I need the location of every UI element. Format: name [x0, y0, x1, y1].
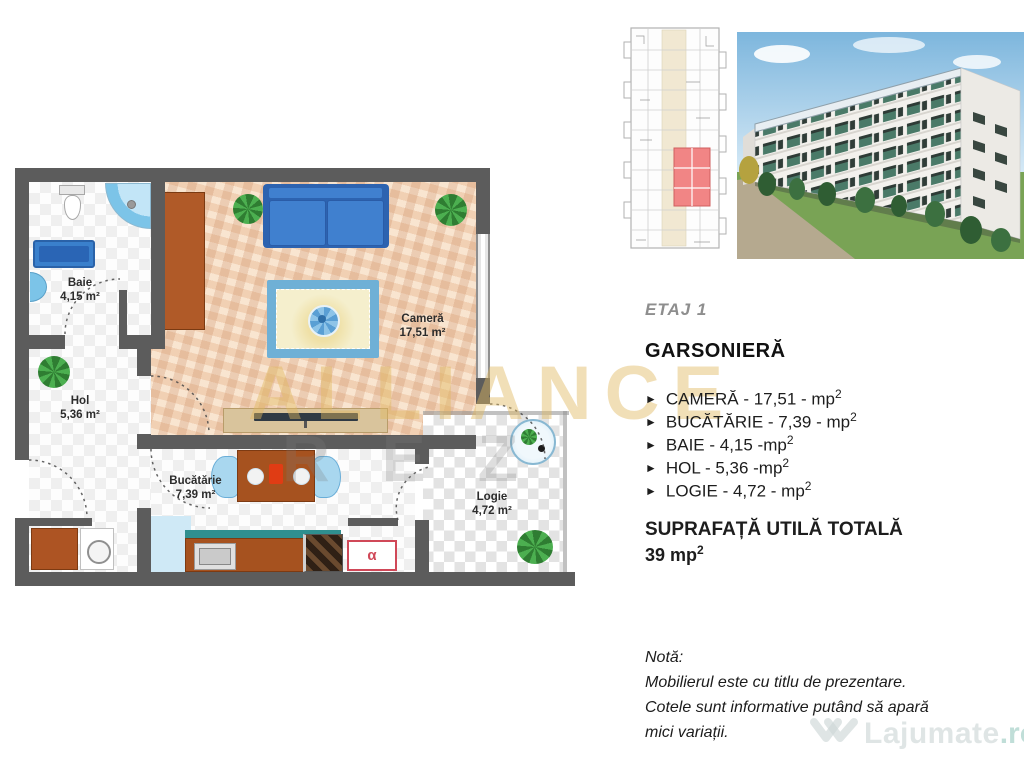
bullet-icon: ► — [645, 392, 657, 406]
boiler-symbol: α — [367, 547, 376, 564]
label-loggia: Logie4,72 m² — [447, 490, 537, 518]
area-list-item: ►CAMERĂ - 17,51 - mp2 — [645, 387, 985, 410]
wall-hall-right-2 — [137, 434, 151, 449]
loggia-bush-icon — [517, 530, 553, 564]
bullet-icon: ► — [645, 415, 657, 429]
kitchen-sink — [194, 543, 236, 570]
area-list-item: ►HOL - 5,36 -mp2 — [645, 456, 985, 479]
label-hall: Hol5,36 m² — [45, 394, 115, 422]
label-living-room: Cameră17,51 m² — [375, 312, 470, 340]
key-plan — [616, 22, 734, 258]
wall-hall-right-1 — [137, 349, 151, 376]
note-line: Mobilierul este cu titlu de prezentare. — [645, 670, 1005, 695]
area-list-item: ►BUCĂTĂRIE - 7,39 - mp2 — [645, 410, 985, 433]
wall-loggia-door-jamb — [348, 518, 398, 526]
bullet-icon: ► — [645, 438, 657, 452]
label-bathroom: Baie4,15 m² — [45, 276, 115, 304]
note-line: mici variații. — [645, 720, 1005, 745]
bullet-icon: ► — [645, 484, 657, 498]
stove — [303, 534, 343, 572]
wall-bottom — [15, 572, 575, 586]
floor-label: ETAJ 1 — [645, 300, 985, 320]
bathtub — [33, 240, 95, 268]
total-area-value: 39 mp2 — [645, 543, 985, 566]
wall-hall-right-3 — [137, 508, 151, 572]
washing-machine — [80, 528, 114, 570]
plant-hall-icon — [38, 356, 70, 388]
wall-bathroom-bottom-right — [125, 335, 151, 349]
toilet-tank — [59, 185, 85, 195]
key-plan-drawing — [616, 22, 734, 258]
wall-top — [15, 168, 490, 182]
unit-type-label: GARSONIERĂ — [645, 340, 985, 363]
building-render-image — [737, 32, 1024, 259]
area-list-item: ►BAIE - 4,15 -mp2 — [645, 433, 985, 456]
wall-kitchen-right-2 — [415, 520, 429, 572]
label-kitchen: Bucătărie7,39 m² — [153, 474, 238, 502]
total-area-label: SUPRAFAȚĂ UTILĂ TOTALĂ — [645, 519, 985, 541]
watermark-rezidential: REZ — [282, 420, 570, 496]
wall-entry-door-jamb — [29, 518, 92, 526]
wall-left-upper — [15, 168, 29, 460]
shower-head-icon — [127, 200, 136, 209]
hall-cabinet — [31, 528, 78, 570]
note-title: Notă: — [645, 645, 1005, 670]
rug — [267, 280, 379, 358]
table-decor-red — [269, 464, 283, 484]
details-panel: ETAJ 1 GARSONIERĂ ►CAMERĂ - 17,51 - mp2 … — [645, 300, 985, 566]
area-list-item: ►LOGIE - 4,72 - mp2 — [645, 479, 985, 502]
wall-bathroom-door-jamb — [119, 290, 127, 349]
wall-bathroom-right — [151, 182, 165, 349]
wall-right-upper — [476, 168, 490, 234]
wardrobe — [161, 192, 205, 330]
note-line: Cotele sunt informative putând să apară — [645, 695, 1005, 720]
plant-living-left-icon — [233, 194, 263, 224]
wall-bathroom-bottom-left — [29, 335, 65, 349]
sofa — [263, 184, 389, 248]
bullet-icon: ► — [645, 461, 657, 475]
boiler-unit: α — [347, 540, 397, 571]
note-block: Notă: Mobilierul este cu titlu de prezen… — [645, 645, 1005, 745]
plant-living-right-icon — [435, 194, 467, 226]
